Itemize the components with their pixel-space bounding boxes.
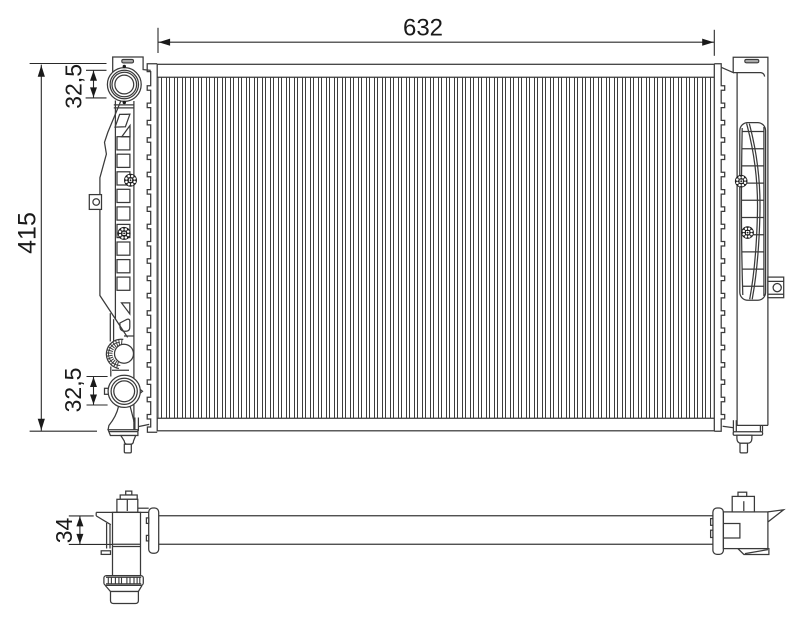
- svg-text:415: 415: [14, 212, 42, 254]
- svg-text:34: 34: [51, 518, 77, 544]
- svg-text:32,5: 32,5: [60, 64, 86, 109]
- svg-text:32,5: 32,5: [60, 368, 86, 413]
- svg-text:632: 632: [403, 15, 443, 42]
